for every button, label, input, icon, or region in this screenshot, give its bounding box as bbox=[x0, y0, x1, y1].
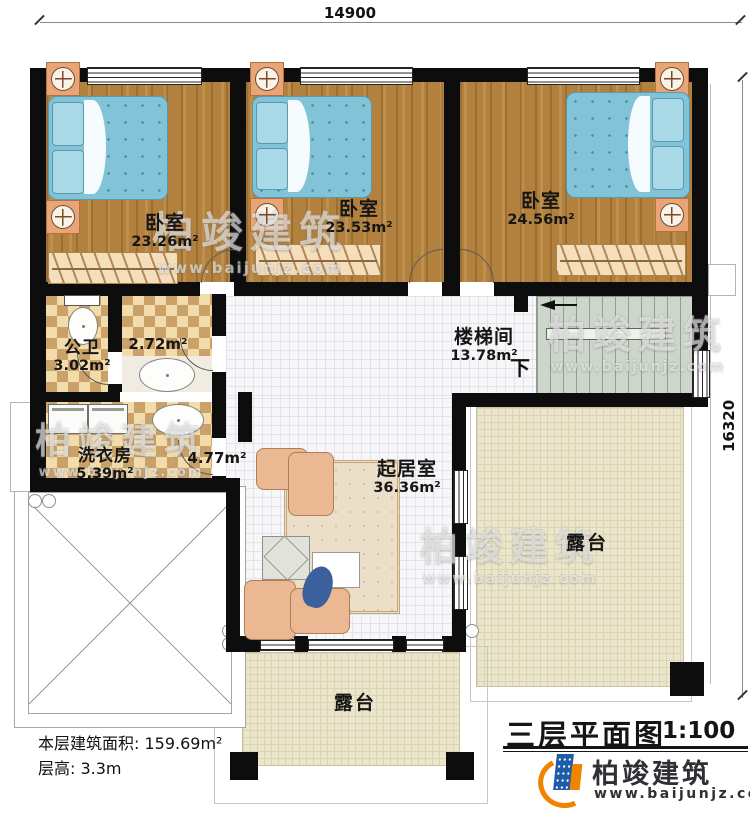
dimension-tick bbox=[34, 15, 45, 26]
room-name: 楼梯间 bbox=[424, 326, 544, 348]
pillow bbox=[256, 148, 288, 190]
terrace-right-rail bbox=[710, 84, 711, 684]
pillow bbox=[256, 102, 288, 144]
wall-living-south bbox=[294, 636, 308, 652]
bedroom2-label: 卧室 23.53m² bbox=[299, 198, 419, 238]
bedroom3-wardrobe bbox=[556, 244, 686, 276]
floor-plan: 14900 16320 bbox=[0, 0, 750, 814]
wall-bedrooms-south bbox=[494, 282, 708, 296]
room-area: 2.72m² bbox=[110, 336, 206, 354]
room-area: 36.36m² bbox=[337, 480, 477, 497]
terrace-right-label: 露台 bbox=[566, 528, 608, 555]
stair-outer-ledge bbox=[708, 264, 736, 296]
living-south-window-1 bbox=[260, 639, 296, 651]
stair-arrow-tail bbox=[553, 304, 577, 306]
stairwell-window bbox=[692, 350, 710, 398]
washing-machine bbox=[48, 404, 88, 434]
drain-pipe bbox=[28, 494, 42, 508]
nightstand bbox=[655, 198, 689, 232]
top-dimension-value: 14900 bbox=[300, 4, 400, 22]
laundry-sink bbox=[152, 404, 204, 436]
footer-area-text: 本层建筑面积: 159.69m² 层高: 3.3m bbox=[38, 732, 222, 782]
company-url: www.baijunjz.com bbox=[594, 786, 750, 802]
wall-right-upper bbox=[692, 68, 708, 352]
bedroom2-window bbox=[300, 67, 413, 85]
terrace-bottom-pillar-left bbox=[230, 752, 258, 780]
washing-machine bbox=[88, 404, 128, 434]
wall-vanity-east bbox=[212, 372, 226, 438]
bedroom1-label: 卧室 23.26m² bbox=[105, 212, 225, 252]
room-name: 起居室 bbox=[337, 458, 477, 480]
roof-ridge-lines bbox=[29, 493, 231, 713]
room-name: 卧室 bbox=[299, 198, 419, 220]
toilet-tank bbox=[64, 295, 100, 306]
bedroom3-window bbox=[527, 67, 640, 85]
wall-bedrooms-south bbox=[234, 282, 408, 296]
wall-stair-stub bbox=[514, 296, 528, 312]
pillow bbox=[652, 98, 684, 142]
right-dimension-value: 16320 bbox=[720, 396, 738, 456]
stair-treads bbox=[536, 296, 694, 398]
wall-living-west bbox=[226, 478, 240, 652]
wall-living-south bbox=[392, 636, 406, 652]
laundry-label: 洗衣房 5.39m² bbox=[45, 446, 165, 483]
plan-scale: 1:100 bbox=[662, 718, 735, 744]
pillow bbox=[52, 150, 84, 194]
side-table bbox=[262, 536, 310, 580]
sofa-two-seat bbox=[288, 452, 334, 516]
living-label: 起居室 36.36m² bbox=[337, 458, 477, 498]
left-ledge bbox=[10, 402, 32, 492]
floor-height-line: 层高: 3.3m bbox=[38, 757, 222, 782]
wall-br2-br3 bbox=[444, 82, 460, 282]
drain-pipe bbox=[42, 494, 56, 508]
room-area: 5.39m² bbox=[45, 466, 165, 483]
wall-left-upper bbox=[30, 68, 46, 294]
wall-bedrooms-south bbox=[442, 282, 460, 296]
stair-handrail bbox=[546, 328, 666, 340]
pillow bbox=[652, 146, 684, 190]
bedroom2-wardrobe bbox=[255, 244, 381, 276]
terrace-bottom-label: 露台 bbox=[334, 688, 376, 715]
terrace-bottom-pillar-right bbox=[446, 752, 474, 780]
sofa-left bbox=[244, 580, 296, 640]
stair-down-label: 下 bbox=[510, 352, 530, 381]
floor-area-line: 本层建筑面积: 159.69m² bbox=[38, 732, 222, 757]
room-area: 23.53m² bbox=[299, 220, 419, 237]
bedroom1-wardrobe bbox=[48, 252, 178, 284]
wall-bath-laundry bbox=[30, 392, 120, 402]
dimension-tick bbox=[735, 15, 746, 26]
wall-living-south bbox=[442, 636, 466, 652]
nightstand bbox=[655, 62, 689, 96]
nightstand bbox=[46, 62, 80, 96]
wall-living-west-stub bbox=[238, 392, 252, 442]
room-area: 24.56m² bbox=[481, 212, 601, 229]
bedroom3-label: 卧室 24.56m² bbox=[481, 190, 601, 230]
wall-bath-vanity bbox=[108, 384, 122, 392]
vanity-label: 2.72m² bbox=[110, 336, 206, 354]
nightstand bbox=[250, 198, 284, 232]
bed-sheet bbox=[628, 96, 650, 192]
pillow bbox=[52, 102, 84, 146]
room-area: 4.77m² bbox=[167, 450, 267, 468]
living-south-window-3 bbox=[406, 639, 444, 651]
company-logo-icon bbox=[538, 752, 588, 802]
title-rule-thick bbox=[503, 746, 748, 749]
drain-pipe bbox=[465, 624, 479, 638]
room-area: 3.02m² bbox=[37, 358, 127, 375]
room-name: 卧室 bbox=[481, 190, 601, 212]
living-east-window-2 bbox=[453, 556, 468, 610]
right-dimension-line bbox=[742, 80, 743, 698]
vanity-sink bbox=[139, 358, 195, 392]
bedroom1-window bbox=[87, 67, 202, 85]
room-name: 洗衣房 bbox=[45, 446, 165, 466]
nightstand bbox=[46, 200, 80, 234]
wall-vanity-east bbox=[212, 294, 226, 336]
top-dimension-line bbox=[40, 22, 742, 23]
room-name: 卧室 bbox=[105, 212, 225, 234]
terrace-right-pillar bbox=[670, 662, 704, 696]
living-south-window-2 bbox=[308, 639, 394, 651]
hall-label: 4.77m² bbox=[167, 450, 267, 468]
nightstand bbox=[250, 62, 284, 96]
room-area: 23.26m² bbox=[105, 234, 225, 251]
wall-stair-south bbox=[466, 393, 708, 407]
lower-roof bbox=[28, 492, 232, 714]
